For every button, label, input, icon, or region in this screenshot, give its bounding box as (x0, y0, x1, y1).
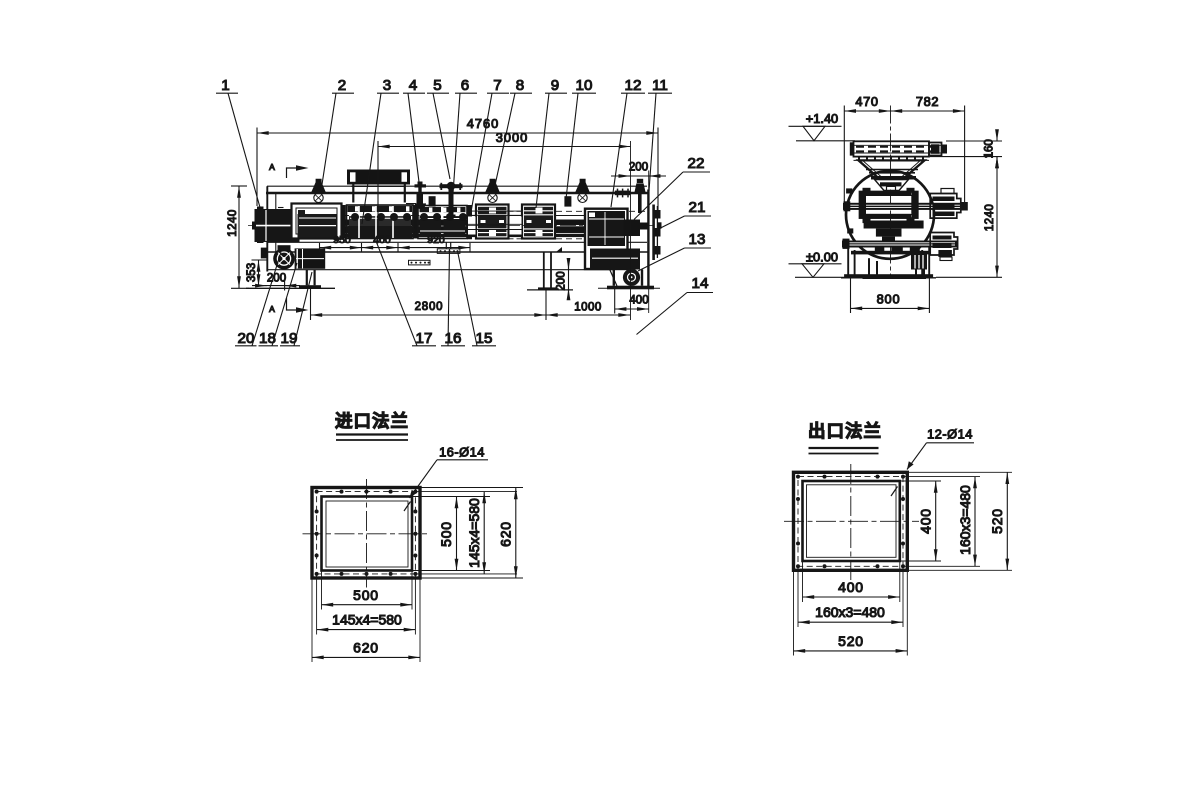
svg-text:520: 520 (838, 633, 864, 649)
svg-text:160x3=480: 160x3=480 (815, 604, 885, 620)
svg-text:+1.40: +1.40 (806, 111, 838, 126)
svg-text:400: 400 (373, 234, 391, 246)
svg-text:782: 782 (916, 94, 939, 109)
svg-text:3: 3 (383, 77, 391, 94)
svg-text:4: 4 (409, 77, 417, 94)
svg-text:6: 6 (461, 77, 469, 94)
svg-text:400: 400 (918, 508, 934, 534)
svg-text:4760: 4760 (467, 116, 499, 131)
svg-text:进口法兰: 进口法兰 (335, 411, 409, 431)
svg-text:12-Ø14: 12-Ø14 (927, 427, 973, 442)
svg-text:2800: 2800 (415, 301, 444, 313)
svg-text:5: 5 (433, 77, 441, 94)
svg-text:160: 160 (984, 139, 996, 158)
svg-text:400: 400 (838, 579, 864, 595)
svg-text:±0.00: ±0.00 (806, 250, 838, 265)
svg-text:1: 1 (221, 77, 229, 94)
svg-text:620: 620 (498, 521, 514, 547)
svg-text:17: 17 (416, 330, 433, 347)
svg-text:500: 500 (353, 587, 379, 603)
svg-text:800: 800 (877, 292, 901, 307)
svg-text:16-Ø14: 16-Ø14 (439, 445, 485, 460)
svg-text:500: 500 (438, 521, 454, 547)
svg-text:1240: 1240 (227, 209, 239, 237)
svg-text:950: 950 (333, 234, 351, 246)
svg-text:200: 200 (267, 273, 286, 285)
svg-text:200: 200 (629, 162, 648, 174)
svg-text:16: 16 (445, 330, 462, 347)
svg-text:13: 13 (689, 231, 706, 248)
svg-text:3000: 3000 (496, 130, 528, 145)
svg-text:14: 14 (692, 275, 709, 292)
svg-text:920: 920 (427, 234, 445, 246)
svg-text:145x4=580: 145x4=580 (466, 498, 482, 568)
svg-text:A: A (269, 162, 275, 172)
svg-text:19: 19 (281, 330, 298, 347)
svg-text:160x3=480: 160x3=480 (957, 485, 973, 555)
svg-text:10: 10 (576, 77, 593, 94)
svg-text:620: 620 (353, 640, 379, 656)
svg-text:200: 200 (556, 271, 568, 290)
svg-text:22: 22 (688, 155, 705, 172)
svg-text:21: 21 (689, 199, 706, 216)
svg-text:A: A (269, 304, 275, 314)
svg-text:12: 12 (625, 77, 642, 94)
svg-text:353: 353 (246, 263, 258, 282)
svg-text:11: 11 (652, 77, 668, 94)
svg-text:1000: 1000 (574, 302, 602, 314)
svg-text:9: 9 (551, 77, 559, 94)
svg-text:145x4=580: 145x4=580 (332, 612, 402, 628)
svg-text:出口法兰: 出口法兰 (808, 421, 882, 441)
svg-text:400: 400 (629, 295, 648, 307)
svg-text:2: 2 (338, 77, 346, 94)
svg-text:7: 7 (493, 77, 501, 94)
svg-text:470: 470 (855, 94, 878, 109)
svg-text:520: 520 (989, 508, 1005, 534)
svg-text:1240: 1240 (984, 204, 996, 232)
svg-text:18: 18 (259, 330, 276, 347)
svg-text:8: 8 (516, 77, 524, 94)
svg-text:15: 15 (476, 330, 493, 347)
